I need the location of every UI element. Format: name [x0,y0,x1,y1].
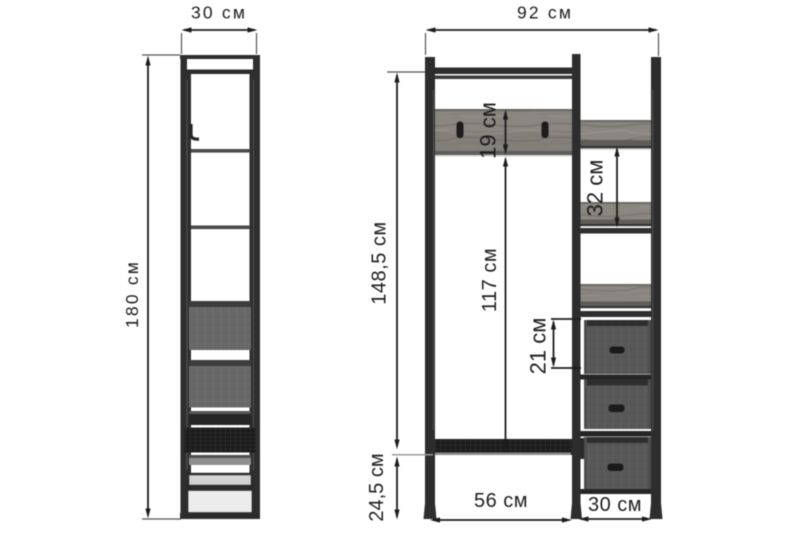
svg-text:24,5 см: 24,5 см [366,453,388,521]
svg-text:117 см: 117 см [479,248,501,312]
svg-text:19 см: 19 см [475,102,500,159]
svg-text:21 см: 21 см [525,318,550,375]
svg-text:30 см: 30 см [588,494,642,516]
svg-text:30 см: 30 см [191,3,247,23]
svg-text:92 см: 92 см [517,3,573,23]
svg-text:56 см: 56 см [474,490,528,512]
svg-text:32 см: 32 см [582,160,607,217]
svg-text:148,5 см: 148,5 см [368,221,390,304]
svg-text:180 см: 180 см [122,260,142,328]
